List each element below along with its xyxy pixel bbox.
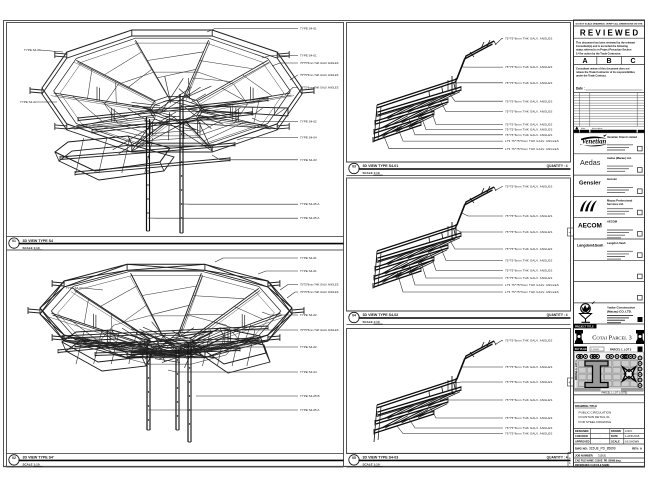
svg-text:AECOM: AECOM — [607, 220, 618, 224]
svg-text:PARCEL 1, LOT 1 (SITE): PARCEL 1, LOT 1 (SITE) — [602, 392, 628, 395]
svg-text:75*75*6mm THK GALV. ANGLES: 75*75*6mm THK GALV. ANGLES — [505, 398, 553, 402]
svg-text:relieve the Trade Contractor o: relieve the Trade Contractor of its resp… — [576, 71, 636, 74]
svg-text:Macau Professional: Macau Professional — [607, 198, 632, 202]
svg-text:-4: -4 — [569, 231, 572, 235]
svg-text:Gensler: Gensler — [607, 177, 617, 181]
svg-text:status referred to in Project: status referred to in Project Procedure … — [576, 49, 632, 52]
svg-text:5.4 for action by the Trade Co: 5.4 for action by the Trade Contractor. — [576, 52, 621, 55]
svg-text:TYPE S4-01: TYPE S4-01 — [300, 27, 317, 31]
svg-text:SCALE 1:10: SCALE 1:10 — [23, 463, 40, 467]
svg-text:QUANTITY : 4: QUANTITY : 4 — [547, 164, 568, 168]
svg-text:(Macau) CO, LTD.: (Macau) CO, LTD. — [607, 309, 632, 313]
svg-text:TYPE S4-02: TYPE S4-02 — [20, 100, 37, 104]
svg-text:FOR STEEL DRAWING: FOR STEEL DRAWING — [579, 420, 612, 424]
svg-text:SCALE 1:10: SCALE 1:10 — [23, 246, 40, 250]
svg-text:Langdon&Seah: Langdon&Seah — [577, 244, 603, 248]
svg-text:3D VIEW TYPE S4-02: 3D VIEW TYPE S4-02 — [363, 313, 399, 317]
svg-text:315UE_PD_85699: 315UE_PD_85699 — [589, 447, 616, 451]
svg-text:75*75*6mm THK GALV. ANGLES: 75*75*6mm THK GALV. ANGLES — [300, 73, 339, 77]
svg-text:JOB NUMBER:: JOB NUMBER: — [575, 453, 593, 457]
svg-text:02: 02 — [12, 456, 16, 460]
svg-text:Langdon Seah: Langdon Seah — [607, 241, 626, 245]
svg-text:75*75*6mm THK GALV. ANGLES: 75*75*6mm THK GALV. ANGLES — [505, 123, 553, 127]
svg-text:1:10000: 1:10000 — [591, 349, 600, 351]
svg-text:-: - — [354, 170, 355, 174]
svg-text:TYPE S4-05 A: TYPE S4-05 A — [300, 408, 319, 412]
svg-text:This document has been reviewe: This document has been reviewed by the r… — [576, 42, 635, 45]
svg-text:75*75*6mm THK GALV. ANGLES: 75*75*6mm THK GALV. ANGLES — [300, 61, 339, 65]
svg-text:315UE: 315UE — [598, 453, 606, 457]
svg-text:-: - — [354, 462, 355, 466]
svg-text:75*75*6mm THK GALV. ANGLES: 75*75*6mm THK GALV. ANGLES — [505, 259, 553, 263]
svg-text:SCALE: SCALE — [611, 439, 620, 443]
svg-text:05: 05 — [352, 456, 356, 460]
svg-text:75*75*6mm THK GALV. ANGLES: 75*75*6mm THK GALV. ANGLES — [505, 65, 553, 69]
svg-text:75*75*6mm THK GALV. ANGLES: 75*75*6mm THK GALV. ANGLES — [505, 99, 553, 103]
svg-text:REV: A: REV: A — [632, 447, 643, 451]
svg-text:75*75*6mm THK GALV. ANGLES: 75*75*6mm THK GALV. ANGLES — [505, 416, 553, 420]
svg-text:TYPE S4-02: TYPE S4-02 — [300, 120, 317, 124]
svg-text:FOUNTAIN DETAIL 01: FOUNTAIN DETAIL 01 — [579, 415, 611, 419]
svg-text:75*75*6mm THK GALV. ANGLES: 75*75*6mm THK GALV. ANGLES — [300, 283, 339, 287]
svg-text:01: 01 — [12, 239, 16, 243]
svg-text:QUANTITY : 4: QUANTITY : 4 — [547, 313, 568, 317]
svg-text:B: B — [606, 58, 611, 65]
svg-text:75*75*6mm THK GALV. ANGLES: 75*75*6mm THK GALV. ANGLES — [505, 36, 553, 40]
svg-text:3D VIEW TYPE S4-03: 3D VIEW TYPE S4-03 — [363, 456, 399, 460]
svg-text:A: A — [582, 58, 587, 65]
svg-text:TYPE S4-05 B: TYPE S4-05 B — [300, 394, 320, 398]
svg-text:TYPE S4-03: TYPE S4-03 — [66, 286, 83, 290]
svg-text:Date :: Date : — [576, 87, 585, 91]
svg-text:75*75*6mm THK GALV. ANGLES: 75*75*6mm THK GALV. ANGLES — [300, 328, 339, 332]
svg-text:75*75*6mm THK GALV. ANGLES: 75*75*6mm THK GALV. ANGLES — [505, 338, 553, 342]
svg-text:-: - — [600, 440, 601, 443]
svg-text:AS SHOWN: AS SHOWN — [625, 439, 639, 443]
svg-text:75*75*6mm THK GALV. ANGLES: 75*75*6mm THK GALV. ANGLES — [505, 214, 553, 218]
svg-text:A: A — [569, 456, 571, 460]
svg-text:SCALE 1:10: SCALE 1:10 — [363, 171, 380, 175]
svg-text:Venetian Orient Limited: Venetian Orient Limited — [607, 135, 637, 139]
svg-text:3D VIEW TYPE S4-01: 3D VIEW TYPE S4-01 — [363, 164, 399, 168]
svg-text:3D VIEW TYPE S4: 3D VIEW TYPE S4 — [23, 239, 54, 243]
svg-text:under the Trade Contract.: under the Trade Contract. — [576, 75, 607, 78]
svg-text:-: - — [14, 245, 15, 249]
svg-text:TYPE S4-01: TYPE S4-01 — [300, 269, 317, 273]
svg-text:Gensler: Gensler — [579, 181, 601, 187]
svg-text:TYPE S4-01: TYPE S4-01 — [24, 48, 41, 52]
svg-text:SCALE 1:10: SCALE 1:10 — [363, 320, 380, 324]
svg-text:04: 04 — [352, 314, 356, 318]
svg-text:75*75*6mm THK GALV. ANGLES: 75*75*6mm THK GALV. ANGLES — [300, 85, 339, 89]
svg-text:TYPE S4-02: TYPE S4-02 — [300, 345, 317, 349]
svg-text:SCALE 1:10: SCALE 1:10 — [363, 463, 380, 467]
svg-text:Venetian: Venetian — [582, 138, 607, 145]
svg-text:DO NOT SCALE DRAWINGS. VERIFY: DO NOT SCALE DRAWINGS. VERIFY ALL DIMENS… — [576, 22, 643, 25]
svg-text:TYPE S4-02: TYPE S4-02 — [62, 336, 79, 340]
svg-text:75*75*6mm THK GALV. ANGLES: 75*75*6mm THK GALV. ANGLES — [505, 432, 553, 436]
svg-text:-: - — [354, 319, 355, 323]
svg-text:Consultant(s) and is accorded: Consultant(s) and is accorded the follow… — [576, 45, 628, 48]
svg-text:75*75*6mm THK GALV. ANGLES: 75*75*6mm THK GALV. ANGLES — [505, 230, 553, 234]
svg-text:DWG NO:: DWG NO: — [575, 447, 588, 451]
svg-text:1-APR-2015: 1-APR-2015 — [625, 434, 640, 438]
svg-text:75*75*6mm THK GALV. ANGLES: 75*75*6mm THK GALV. ANGLES — [505, 276, 553, 280]
svg-text:TYPE S4-05 A: TYPE S4-05 A — [300, 216, 319, 220]
svg-text:-: - — [600, 435, 601, 438]
svg-text:-: - — [14, 462, 15, 466]
svg-text:75*75*6mm THK GALV. ANGLES: 75*75*6mm THK GALV. ANGLES — [505, 133, 553, 137]
svg-text:3D VIEW TYPE S4': 3D VIEW TYPE S4' — [23, 456, 55, 460]
svg-text:TYPE S4-01: TYPE S4-01 — [300, 256, 317, 260]
svg-text:TYPE S4-05 A: TYPE S4-05 A — [300, 202, 319, 206]
svg-text:CHECKED: CHECKED — [575, 434, 588, 438]
svg-text:75*75*6mm THK GALV. ANGLES: 75*75*6mm THK GALV. ANGLES — [300, 290, 339, 294]
svg-text:PUBLIC CIRCULATION: PUBLIC CIRCULATION — [579, 411, 612, 415]
svg-text:PARCEL 1, LOT 2: PARCEL 1, LOT 2 — [610, 347, 632, 351]
svg-text:75*75*6mm THK GALV. ANGLES: 75*75*6mm THK GALV. ANGLES — [505, 110, 553, 114]
svg-text:L75 75*75*6mm THK GALV. ANGLES: L75 75*75*6mm THK GALV. ANGLES — [505, 139, 559, 143]
svg-text:DRAWN: DRAWN — [611, 429, 621, 433]
svg-text:75*75*6mm THK GALV. ANGLES: 75*75*6mm THK GALV. ANGLES — [505, 365, 553, 369]
svg-text:Aedas: Aedas — [580, 158, 601, 167]
svg-text:L75 75*75*6mm THK GALV. ANGLES: L75 75*75*6mm THK GALV. ANGLES — [505, 290, 559, 294]
svg-text:REFERENCE CAD FILE NAME:: REFERENCE CAD FILE NAME: — [575, 464, 610, 467]
svg-text:LOKO: LOKO — [625, 429, 632, 433]
svg-text:R E V I E W E D: R E V I E W E D — [580, 29, 638, 38]
svg-text:L75 75*75*6mm THK GALV. ANGLES: L75 75*75*6mm THK GALV. ANGLES — [505, 283, 559, 287]
svg-text:APPROVED: APPROVED — [575, 439, 590, 443]
svg-text:TYPE S4-03: TYPE S4-03 — [300, 158, 317, 162]
svg-text:75*75*6mm THK GALV. ANGLES: 75*75*6mm THK GALV. ANGLES — [505, 247, 553, 251]
svg-text:PARCEL 1, LOT 1: PARCEL 1, LOT 1 — [575, 360, 578, 380]
svg-text:COTAI PARCEL 3: COTAI PARCEL 3 — [592, 334, 631, 341]
svg-text:75*75*6mm THK GALV. ANGLES: 75*75*6mm THK GALV. ANGLES — [505, 185, 553, 189]
svg-text:75*75*6mm THK GALV. ANGLES: 75*75*6mm THK GALV. ANGLES — [505, 269, 553, 273]
svg-text:L75 75*75*6mm THK GALV. ANGLES: L75 75*75*6mm THK GALV. ANGLES — [505, 147, 559, 151]
svg-text:DESIGNED: DESIGNED — [575, 429, 589, 433]
svg-text:03: 03 — [352, 165, 356, 169]
svg-text:description: description — [592, 127, 603, 130]
svg-text:DRAWING TITLE: DRAWING TITLE — [575, 404, 597, 408]
svg-text:TYPE S4-04: TYPE S4-04 — [300, 135, 317, 139]
svg-text:C: C — [630, 58, 635, 65]
svg-text:KEY PLAN: KEY PLAN — [575, 348, 587, 351]
svg-text:TYPE S4-01: TYPE S4-01 — [300, 54, 317, 58]
svg-text:DATE: DATE — [611, 434, 618, 438]
svg-text:CAD FILE NAME: 315UE_PD_85699.: CAD FILE NAME: 315UE_PD_85699.dwg — [575, 459, 621, 462]
svg-text:TYPE S4-04: TYPE S4-04 — [300, 370, 317, 374]
svg-text:Consultant review of this docu: Consultant review of this document does … — [576, 68, 630, 71]
svg-text:QUANTITY : 4: QUANTITY : 4 — [547, 456, 568, 460]
svg-text:75*75*6mm THK GALV. ANGLES: 75*75*6mm THK GALV. ANGLES — [505, 426, 553, 430]
svg-text:75*75*6mm THK GALV. ANGLES: 75*75*6mm THK GALV. ANGLES — [505, 128, 553, 132]
svg-text:Aedas (Macau) Ltd.: Aedas (Macau) Ltd. — [607, 156, 632, 160]
svg-text:Services Ltd.: Services Ltd. — [607, 202, 624, 206]
svg-text:PROJECT TITLE: PROJECT TITLE — [575, 326, 594, 329]
svg-text:75*75*6mm THK GALV. ANGLES: 75*75*6mm THK GALV. ANGLES — [505, 81, 553, 85]
svg-text:75*75*6mm THK GALV. ANGLES: 75*75*6mm THK GALV. ANGLES — [505, 380, 553, 384]
svg-text:TYPE S4-02: TYPE S4-02 — [300, 313, 317, 317]
svg-text:AECOM: AECOM — [578, 223, 602, 230]
